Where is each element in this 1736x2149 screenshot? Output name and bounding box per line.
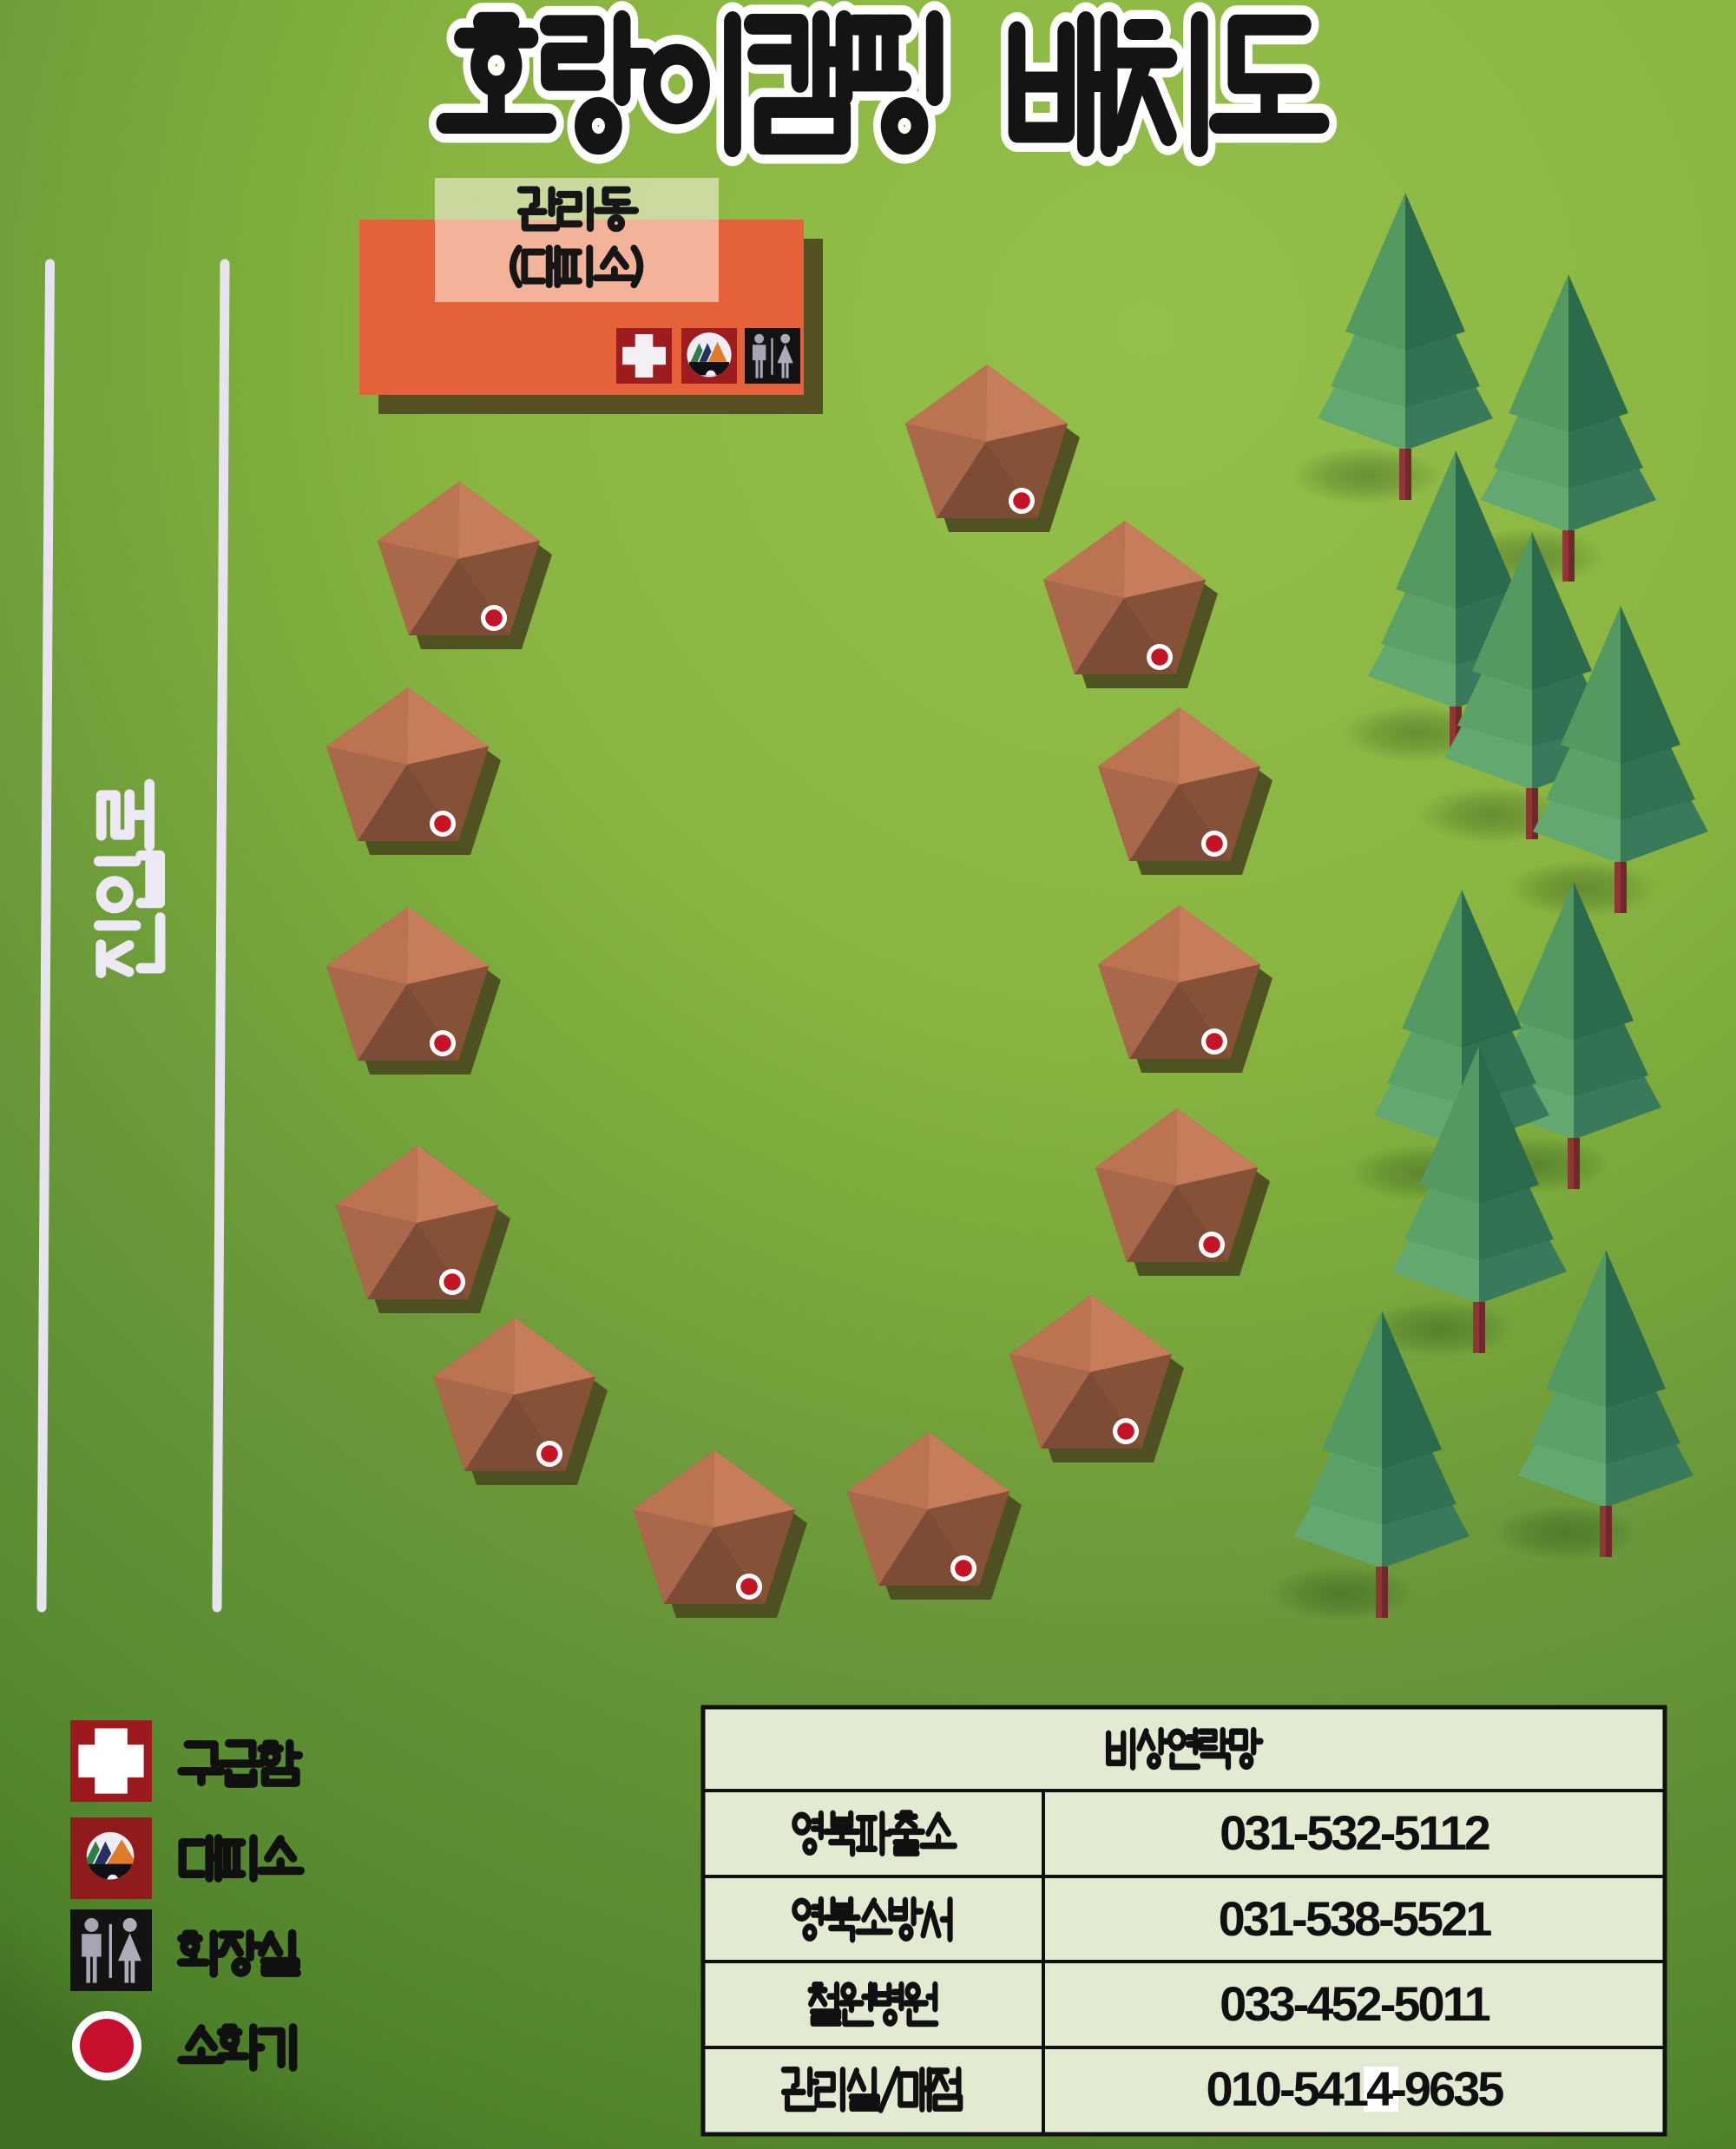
svg-text:033-452-5011: 033-452-5011 (1220, 1976, 1490, 2031)
svg-text:031-538-5521: 031-538-5521 (1219, 1891, 1492, 1946)
svg-text:010-5414-9635: 010-5414-9635 (1207, 2061, 1504, 2116)
svg-text:031-532-5112: 031-532-5112 (1220, 1805, 1489, 1860)
